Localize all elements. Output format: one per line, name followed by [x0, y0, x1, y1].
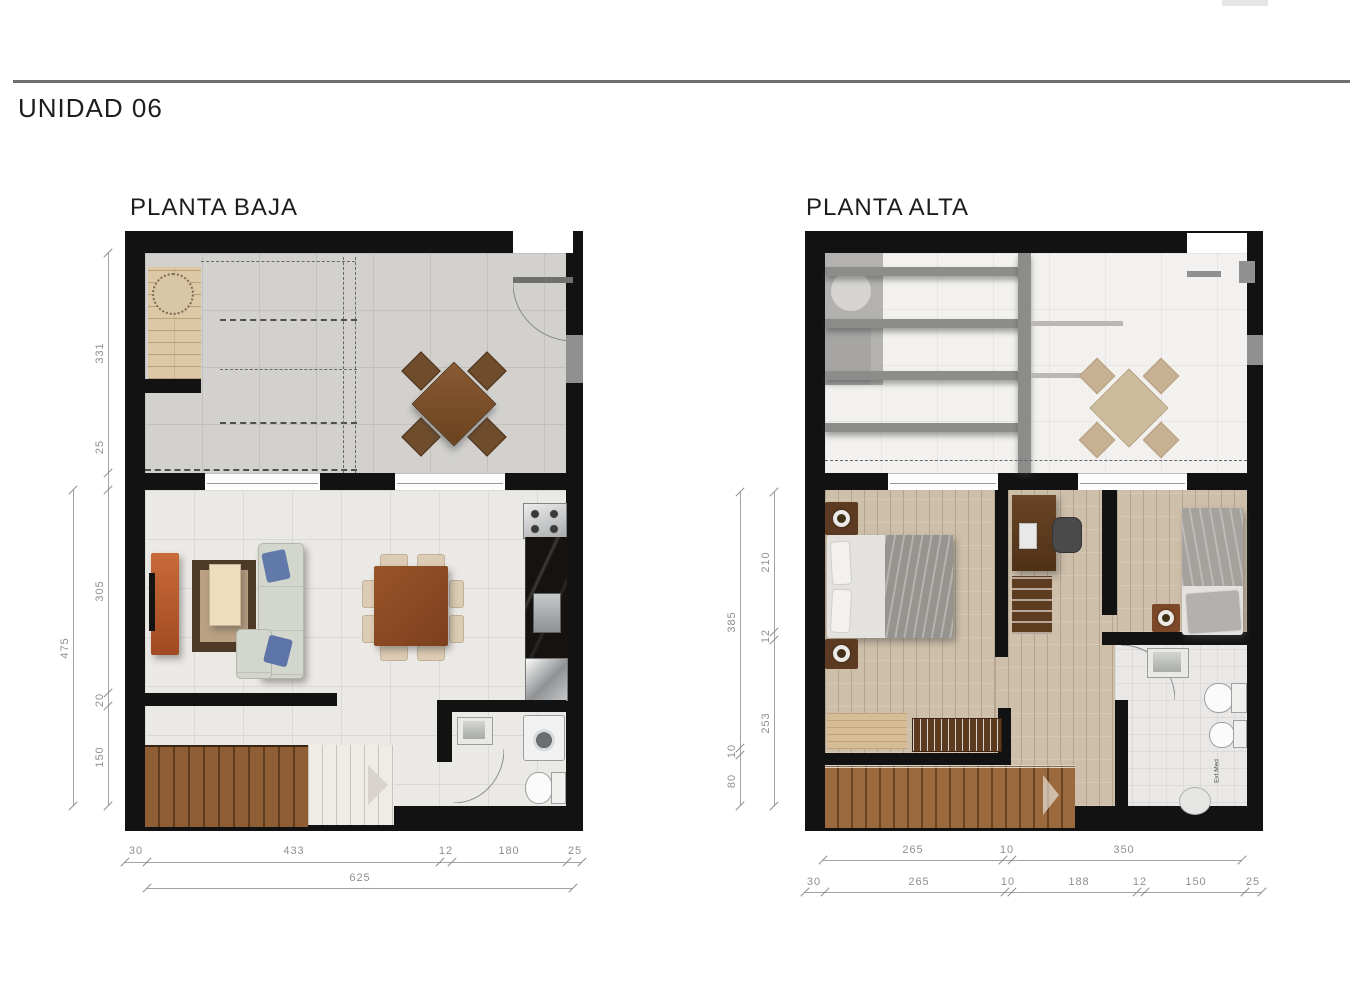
- bath-wall: [1115, 700, 1128, 806]
- dim-label: 12: [439, 845, 453, 857]
- bed-duvet: [1182, 508, 1243, 586]
- entrance-opening: [513, 231, 573, 253]
- dining-chair: [449, 580, 464, 608]
- planter: [152, 273, 194, 315]
- toilet: [525, 772, 553, 804]
- logo-remnant: [1222, 0, 1268, 6]
- stairs: [825, 765, 1075, 828]
- dimension-line: [125, 862, 582, 863]
- dimension-line: [73, 490, 74, 806]
- bed-pillow: [1185, 589, 1243, 635]
- dining-chair: [417, 645, 445, 661]
- planta-alta-drawing: Ext.Med: [805, 231, 1263, 831]
- bidet: [1209, 722, 1235, 748]
- dim-label: 331: [94, 342, 106, 363]
- wardrobe-panel: [827, 713, 907, 749]
- window-sill: [1187, 271, 1221, 277]
- pergola-beam: [1018, 253, 1031, 473]
- pergola-beam-light: [1031, 321, 1123, 326]
- stairs-direction-arrow: [1043, 775, 1059, 815]
- dining-chair: [380, 645, 408, 661]
- bedroom2-wall: [1102, 490, 1117, 615]
- dim-label: 30: [807, 876, 821, 888]
- dim-label: 20: [94, 693, 106, 707]
- office-chair: [1052, 517, 1082, 553]
- bed-pillow: [830, 589, 852, 634]
- planta-baja-drawing: [125, 231, 583, 831]
- planter-ghost: [831, 271, 871, 311]
- dimension-line: [805, 892, 1262, 893]
- dim-label: 210: [760, 551, 772, 572]
- pergola-dashed-line: [220, 319, 357, 321]
- dim-label: 475: [59, 637, 71, 658]
- dim-label: 265: [908, 876, 929, 888]
- bed-blanket: [885, 535, 953, 638]
- dimension-line: [740, 492, 741, 806]
- pergola-beam: [825, 423, 1022, 432]
- roof-dashed-line: [825, 460, 1247, 461]
- header-divider: [13, 80, 1350, 83]
- dim-label: 12: [1133, 876, 1147, 888]
- dim-label: 625: [349, 872, 370, 884]
- bedroom1-wall: [995, 490, 1008, 657]
- vent-label: Ext.Med: [1214, 759, 1221, 783]
- dim-label: 25: [94, 440, 106, 454]
- pergola-beam: [825, 319, 1022, 328]
- pergola-dashed-line: [343, 257, 344, 473]
- toilet-tank: [1231, 683, 1247, 713]
- bath-wall: [452, 700, 566, 712]
- void-over-patio: [825, 253, 1247, 473]
- plan-title-alta: PLANTA ALTA: [806, 194, 969, 222]
- toilet-tank: [551, 772, 566, 804]
- window-sill: [1247, 335, 1263, 365]
- dim-label: 180: [498, 845, 519, 857]
- door-swing-arc: [513, 283, 573, 341]
- bath-sink-basin: [1153, 652, 1181, 672]
- pergola-beam: [825, 371, 1022, 380]
- dim-label: 433: [283, 845, 304, 857]
- lamp: [833, 510, 850, 527]
- dim-label: 30: [129, 845, 143, 857]
- dim-label: 350: [1113, 844, 1134, 856]
- tv-sideboard: [151, 553, 179, 655]
- dim-label: 150: [94, 746, 106, 767]
- dim-label: 265: [902, 844, 923, 856]
- toilet: [1204, 683, 1234, 713]
- dining-table: [374, 566, 448, 646]
- dimension-line: [774, 492, 775, 806]
- bath-wall: [437, 700, 452, 762]
- dim-label: 188: [1068, 876, 1089, 888]
- door-swing-arc: [454, 749, 504, 803]
- tv: [149, 573, 155, 631]
- unit-title: UNIDAD 06: [18, 93, 163, 124]
- washing-machine: [523, 715, 565, 761]
- stair-wall: [825, 753, 1008, 765]
- stairs-direction-arrow: [368, 765, 388, 805]
- pergola-dashed-line: [220, 369, 357, 370]
- pergola-dashed-line: [145, 469, 357, 471]
- bidet-tank: [1233, 720, 1247, 748]
- dim-label: 10: [726, 744, 738, 758]
- shelf-unit: [1012, 576, 1052, 634]
- dim-label: 10: [1001, 876, 1015, 888]
- pergola-beam: [825, 267, 1022, 276]
- bath-sink-basin: [463, 721, 485, 739]
- window-opening: [1187, 233, 1247, 253]
- shower-drain: [1179, 787, 1211, 815]
- pergola-dashed-line: [201, 261, 355, 262]
- clothes-rack: [912, 718, 1002, 752]
- dim-label: 25: [1246, 876, 1260, 888]
- lamp: [833, 645, 850, 662]
- plan-title-baja: PLANTA BAJA: [130, 194, 298, 222]
- stairs: [145, 745, 308, 827]
- dim-label: 80: [726, 774, 738, 788]
- dim-label: 305: [94, 580, 106, 601]
- coffee-table: [209, 564, 241, 626]
- side-gate: [566, 335, 583, 383]
- dim-label: 150: [1185, 876, 1206, 888]
- pergola-dashed-line: [220, 422, 357, 424]
- pergola-dashed-line: [355, 257, 356, 473]
- dining-chair: [449, 615, 464, 643]
- dim-label: 385: [726, 611, 738, 632]
- dim-label: 12: [760, 629, 772, 643]
- bed-pillow: [830, 541, 852, 586]
- fridge: [525, 658, 568, 701]
- stair-wall: [145, 693, 337, 706]
- dimension-line: [147, 888, 573, 889]
- window-sill: [1239, 261, 1255, 283]
- floorplan-sheet: UNIDAD 06 PLANTA BAJA PLANTA ALTA: [0, 0, 1365, 982]
- kitchen-sink: [533, 593, 561, 633]
- stove: [523, 503, 567, 539]
- dimension-line: [108, 253, 109, 806]
- dim-label: 25: [568, 845, 582, 857]
- dim-label: 253: [760, 712, 772, 733]
- lamp: [1158, 610, 1174, 626]
- dimension-line: [823, 860, 1242, 861]
- laptop: [1019, 523, 1037, 549]
- dim-label: 10: [1000, 844, 1014, 856]
- deck-stub-wall: [145, 379, 201, 393]
